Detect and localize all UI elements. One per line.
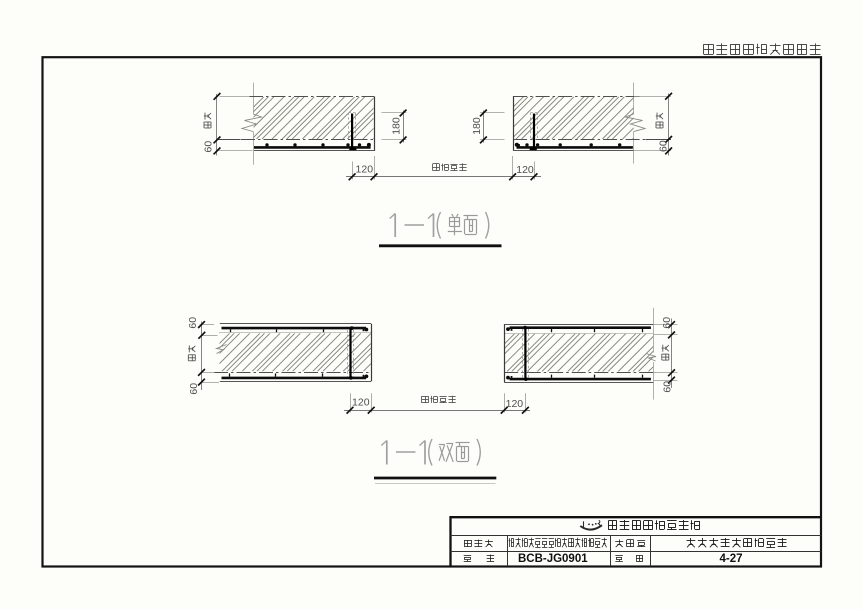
svg-text:180: 180: [391, 117, 403, 135]
svg-text:60: 60: [202, 141, 214, 153]
svg-text:60: 60: [662, 381, 674, 393]
svg-text:60: 60: [187, 317, 199, 329]
svg-text:60: 60: [188, 383, 200, 395]
svg-text:120: 120: [516, 164, 534, 176]
svg-text:120: 120: [352, 396, 370, 408]
svg-text:BCB-JG0901: BCB-JG0901: [518, 553, 588, 565]
svg-text:180: 180: [471, 117, 483, 135]
svg-text:60: 60: [661, 317, 673, 329]
svg-text:60: 60: [658, 140, 670, 152]
svg-text:120: 120: [356, 164, 374, 176]
svg-text:120: 120: [506, 398, 524, 410]
svg-text:4-27: 4-27: [719, 553, 742, 565]
